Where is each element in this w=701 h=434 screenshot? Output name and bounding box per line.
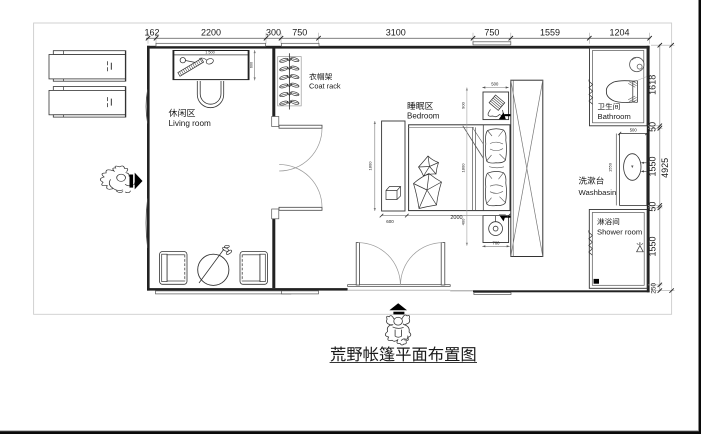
svg-text:750: 750 — [484, 28, 499, 38]
svg-text:750: 750 — [292, 28, 307, 38]
svg-text:Bathroom: Bathroom — [598, 112, 631, 121]
svg-text:162: 162 — [144, 28, 159, 38]
svg-text:Coat rack: Coat rack — [309, 81, 341, 90]
svg-text:Living room: Living room — [169, 119, 212, 128]
svg-text:Shower room: Shower room — [597, 228, 642, 237]
svg-text:50: 50 — [647, 122, 657, 132]
svg-text:1559: 1559 — [540, 28, 560, 38]
svg-text:1800: 1800 — [368, 161, 373, 171]
svg-text:600: 600 — [386, 219, 394, 224]
svg-text:500: 500 — [491, 82, 499, 87]
svg-text:700: 700 — [493, 241, 501, 246]
svg-text:2200: 2200 — [201, 28, 221, 38]
svg-text:500: 500 — [630, 127, 638, 132]
svg-text:1800: 1800 — [461, 163, 466, 173]
svg-text:250: 250 — [650, 282, 657, 293]
svg-text:1618: 1618 — [647, 75, 657, 95]
svg-text:400: 400 — [461, 218, 466, 225]
svg-text:50: 50 — [647, 202, 657, 212]
svg-text:Washbasin: Washbasin — [579, 188, 617, 197]
svg-text:3100: 3100 — [386, 28, 406, 38]
svg-text:Bedroom: Bedroom — [407, 112, 440, 121]
svg-text:4925: 4925 — [660, 158, 670, 178]
svg-text:600: 600 — [250, 62, 254, 68]
svg-text:1 500: 1 500 — [205, 51, 215, 55]
svg-text:300: 300 — [266, 28, 281, 38]
svg-text:1204: 1204 — [609, 28, 629, 38]
svg-text:1550: 1550 — [608, 162, 613, 172]
svg-text:900: 900 — [461, 101, 466, 108]
svg-text:1550: 1550 — [647, 156, 657, 176]
svg-text:1550: 1550 — [647, 236, 657, 256]
